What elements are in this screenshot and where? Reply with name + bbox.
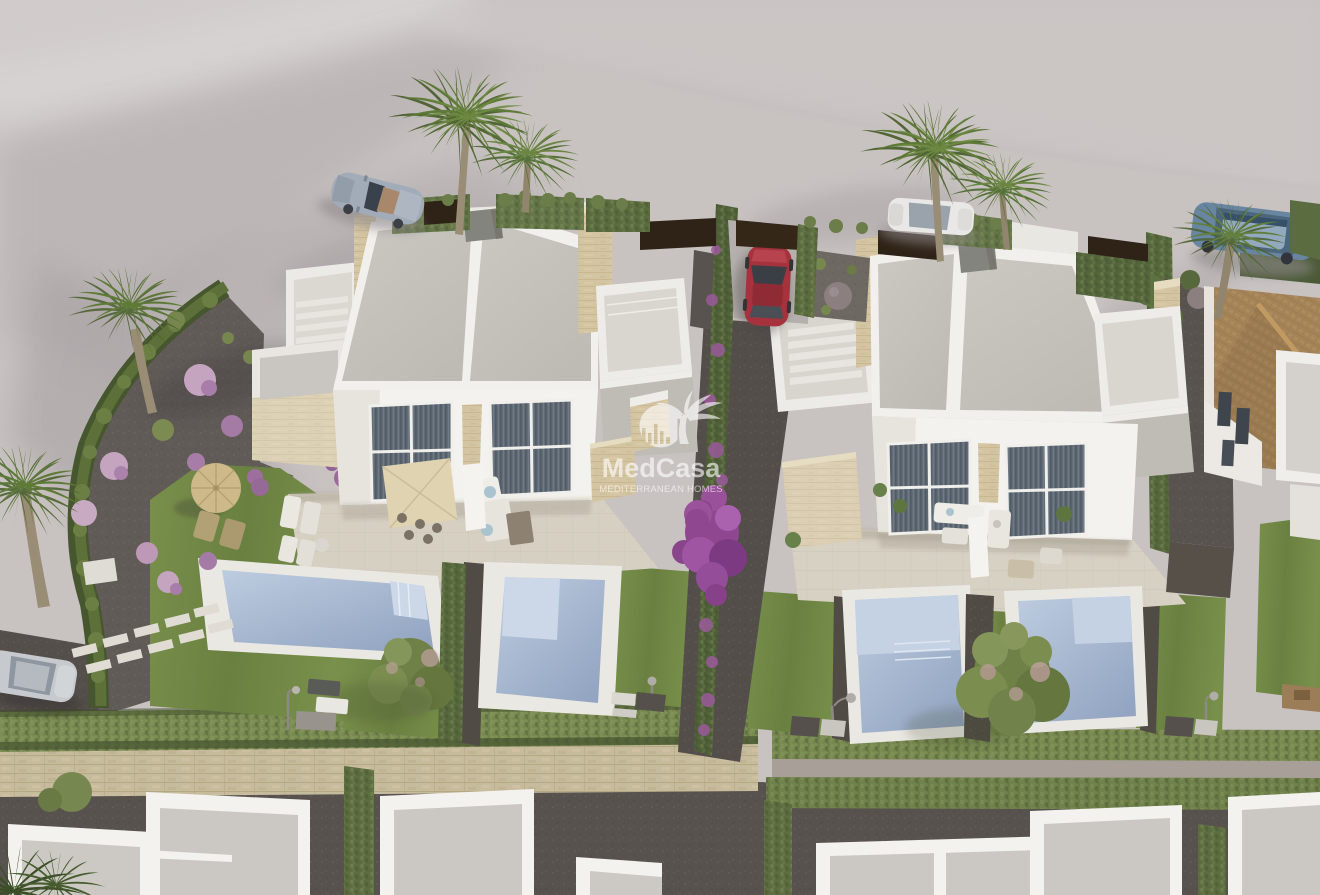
svg-text:MEDITERRANEAN HOMES: MEDITERRANEAN HOMES xyxy=(599,484,723,495)
svg-text:MedCasa: MedCasa xyxy=(602,453,722,483)
